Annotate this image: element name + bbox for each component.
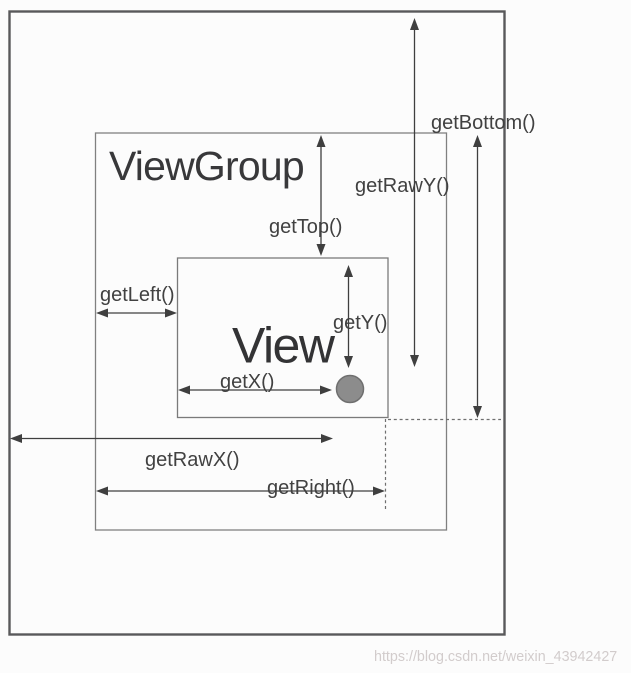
svg-text:View: View: [232, 318, 336, 374]
svg-text:getRight(): getRight(): [267, 477, 355, 499]
svg-text:getBottom(): getBottom(): [431, 112, 535, 134]
svg-text:https://blog.csdn.net/weixin_4: https://blog.csdn.net/weixin_43942427: [374, 649, 617, 665]
svg-text:getX(): getX(): [220, 371, 274, 393]
svg-text:ViewGroup: ViewGroup: [109, 143, 304, 189]
svg-text:getRawX(): getRawX(): [145, 449, 239, 471]
svg-text:getRawY(): getRawY(): [355, 175, 449, 197]
svg-text:getLeft(): getLeft(): [100, 284, 174, 306]
svg-text:getY(): getY(): [333, 312, 387, 334]
svg-text:getTop(): getTop(): [269, 216, 342, 238]
